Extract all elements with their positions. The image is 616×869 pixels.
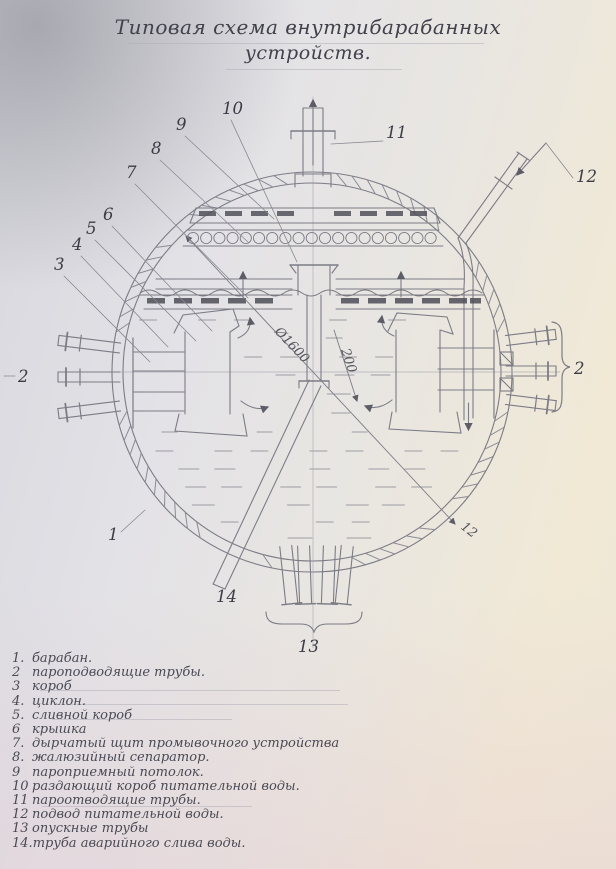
legend-item: 4.циклон. bbox=[12, 695, 452, 709]
right-steam-inlet-box bbox=[438, 330, 513, 418]
cyclone-drain-tray bbox=[175, 414, 247, 436]
callout-leaders bbox=[4, 120, 573, 532]
cyclone-drain-tray bbox=[389, 412, 461, 433]
legend-item: 3короб bbox=[12, 680, 452, 694]
callout-1: 1 bbox=[108, 525, 119, 544]
left-cyclone bbox=[174, 309, 268, 436]
callout-12: 12 bbox=[576, 167, 597, 186]
left-steam-inlet-box bbox=[133, 338, 184, 428]
legend-item-text: циклон. bbox=[32, 694, 86, 709]
legend-item-text: жалюзийный сепаратор. bbox=[32, 750, 210, 765]
brace-right bbox=[552, 322, 570, 412]
legend-item: 5.сливной короб bbox=[12, 709, 452, 723]
legend-item: 12подвод питательной воды. bbox=[12, 808, 452, 822]
notebook-page: Типовая схема внутрибарабанных устройств… bbox=[0, 0, 616, 869]
legend-item-number: 14. bbox=[12, 837, 33, 851]
callout-6: 6 bbox=[103, 205, 114, 224]
legend-item-number: 3 bbox=[12, 680, 32, 694]
legend-item-number: 4. bbox=[12, 695, 32, 709]
legend-item-number: 5. bbox=[12, 709, 32, 723]
legend-item: 14.труба аварийного слива воды. bbox=[12, 837, 452, 851]
legend-item: 8.жалюзийный сепаратор. bbox=[12, 751, 452, 765]
legend-item-number: 9 bbox=[12, 766, 32, 780]
feedwater-inlet-arrow bbox=[517, 143, 546, 175]
right-steam-inlet-pipes bbox=[505, 322, 570, 415]
legend-item-number: 10 bbox=[12, 780, 32, 794]
legend-item-text: дырчатый щит промывочного устройства bbox=[32, 736, 339, 751]
steam-receiving-ceiling bbox=[190, 208, 440, 223]
legend-item-number: 8. bbox=[12, 751, 32, 765]
parts-legend: 1.барабан. 2пароподводящие трубы. 3короб… bbox=[12, 652, 452, 851]
callout-2-right: 2 bbox=[573, 359, 585, 378]
callout-9: 9 bbox=[176, 115, 187, 134]
legend-item-number: 12 bbox=[12, 808, 32, 822]
washing-shield bbox=[140, 272, 484, 309]
legend-item: 11пароотводящие трубы. bbox=[12, 794, 452, 808]
legend-item-number: 1. bbox=[12, 652, 32, 666]
legend-item-text: барабан. bbox=[32, 651, 92, 666]
drum-diameter-dimension-label: Ø1600 bbox=[270, 324, 312, 367]
legend-item: 13опускные трубы bbox=[12, 822, 452, 836]
brace-bottom bbox=[266, 612, 362, 632]
steam-swirl-arrow bbox=[238, 318, 250, 338]
legend-item-text: пароприемный потолок. bbox=[32, 765, 204, 780]
steam-outlet-nozzle bbox=[291, 100, 335, 187]
legend-item: 7.дырчатый щит промывочного устройства bbox=[12, 737, 452, 751]
legend-item-text: пароподводящие трубы. bbox=[32, 665, 205, 680]
legend-item-text: крышка bbox=[32, 722, 87, 737]
legend-item-text: подвод питательной воды. bbox=[32, 807, 224, 822]
feedwater-inlet-pipe bbox=[458, 143, 546, 430]
callout-3: 3 bbox=[54, 255, 65, 274]
legend-item-number: 11 bbox=[12, 794, 32, 808]
callout-12-dim: 12 bbox=[458, 519, 480, 541]
legend-item: 6крышка bbox=[12, 723, 452, 737]
cyclone-cap bbox=[174, 309, 239, 333]
legend-item: 2пароподводящие трубы. bbox=[12, 666, 452, 680]
steam-swirl-arrow bbox=[382, 316, 394, 336]
callout-10: 10 bbox=[222, 99, 243, 118]
legend-item-number: 13 bbox=[12, 822, 32, 836]
legend-item-number: 7. bbox=[12, 737, 32, 751]
legend-item-number: 2 bbox=[12, 666, 32, 680]
legend-item-text: короб bbox=[32, 679, 72, 694]
callout-5: 5 bbox=[86, 219, 97, 238]
callout-14: 14 bbox=[216, 587, 237, 606]
legend-item-text: раздающий короб питательной воды. bbox=[32, 779, 300, 794]
callout-7: 7 bbox=[126, 163, 137, 182]
legend-item: 1.барабан. bbox=[12, 652, 452, 666]
legend-item-text: труба аварийного слива воды. bbox=[33, 836, 246, 851]
legend-item-number: 6 bbox=[12, 723, 32, 737]
water-swirl-arrow bbox=[241, 401, 268, 409]
callout-2-left: 2 bbox=[17, 367, 29, 386]
legend-item-text: опускные трубы bbox=[32, 821, 148, 836]
callout-8: 8 bbox=[151, 139, 162, 158]
callout-11: 11 bbox=[386, 123, 407, 142]
legend-item-text: пароотводящие трубы. bbox=[32, 793, 201, 808]
cyclone-cap bbox=[388, 313, 453, 334]
callout-4: 4 bbox=[71, 235, 83, 254]
legend-item: 10раздающий короб питательной воды. bbox=[12, 780, 452, 794]
right-cyclone bbox=[365, 313, 461, 433]
legend-item-text: сливной короб bbox=[32, 708, 132, 723]
water-swirl-arrow bbox=[365, 400, 392, 408]
water-level-dimension-label: 200 bbox=[337, 346, 359, 375]
legend-item: 9пароприемный потолок. bbox=[12, 766, 452, 780]
